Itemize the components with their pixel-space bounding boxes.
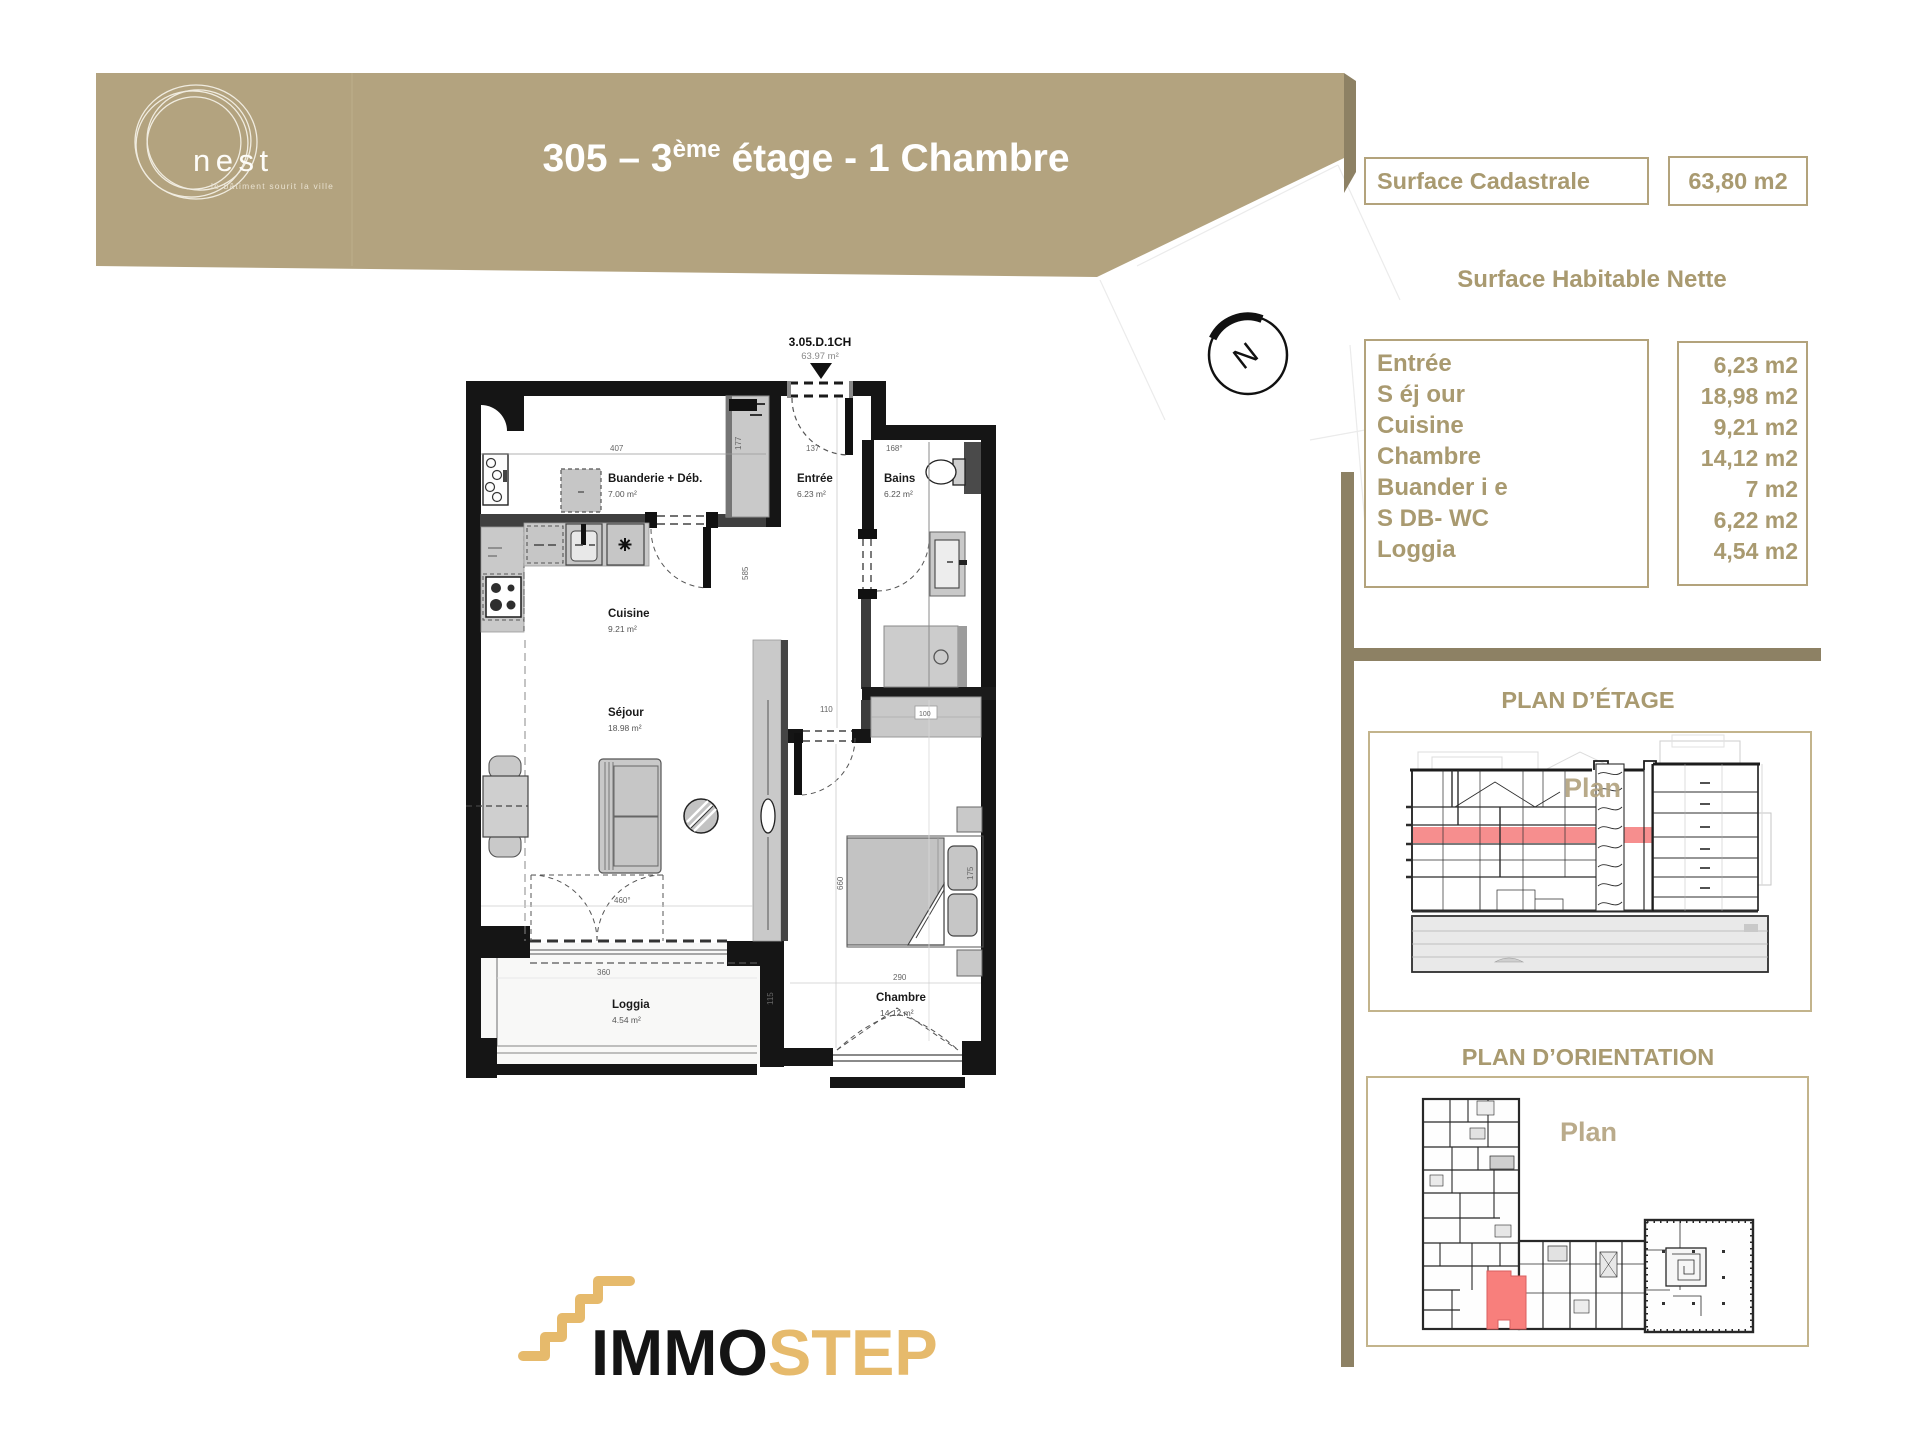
svg-text:6.22 m²: 6.22 m² bbox=[884, 489, 913, 499]
svg-text:Chambre: Chambre bbox=[876, 992, 926, 1004]
svg-text:110: 110 bbox=[820, 705, 833, 714]
svg-text:63.97 m²: 63.97 m² bbox=[801, 351, 839, 362]
svg-text:175: 175 bbox=[966, 866, 975, 880]
svg-text:Loggia: Loggia bbox=[612, 999, 650, 1011]
svg-text:407: 407 bbox=[610, 444, 624, 453]
svg-text:le bâtiment sourit la ville: le bâtiment sourit la ville bbox=[211, 181, 334, 191]
svg-text:18.98 m²: 18.98 m² bbox=[608, 723, 642, 733]
svg-text:3.05.D.1CH: 3.05.D.1CH bbox=[789, 335, 852, 349]
svg-text:14.12 m²: 14.12 m² bbox=[880, 1008, 914, 1018]
svg-text:168°: 168° bbox=[886, 444, 903, 453]
svg-text:4.54 m²: 4.54 m² bbox=[612, 1015, 641, 1025]
svg-text:6.23 m²: 6.23 m² bbox=[797, 489, 826, 499]
svg-text:7.00 m²: 7.00 m² bbox=[608, 489, 637, 499]
svg-text:100: 100 bbox=[919, 711, 931, 718]
svg-text:137: 137 bbox=[806, 444, 820, 453]
svg-text:177: 177 bbox=[734, 436, 743, 450]
svg-text:nest: nest bbox=[193, 143, 274, 178]
svg-text:Plan: Plan bbox=[1560, 1117, 1617, 1147]
svg-text:660: 660 bbox=[836, 876, 845, 890]
svg-text:Plan: Plan bbox=[1564, 773, 1621, 803]
svg-text:Buanderie + Déb.: Buanderie + Déb. bbox=[608, 473, 702, 485]
svg-text:Séjour: Séjour bbox=[608, 707, 644, 719]
svg-text:Bains: Bains bbox=[884, 473, 915, 485]
svg-text:115: 115 bbox=[766, 992, 775, 1005]
svg-text:Cuisine: Cuisine bbox=[608, 608, 650, 620]
svg-text:460°: 460° bbox=[614, 896, 631, 905]
svg-text:Entrée: Entrée bbox=[797, 473, 833, 485]
svg-text:585: 585 bbox=[741, 566, 750, 580]
svg-text:360: 360 bbox=[597, 968, 611, 977]
svg-text:9.21 m²: 9.21 m² bbox=[608, 624, 637, 634]
svg-text:290: 290 bbox=[893, 973, 907, 982]
